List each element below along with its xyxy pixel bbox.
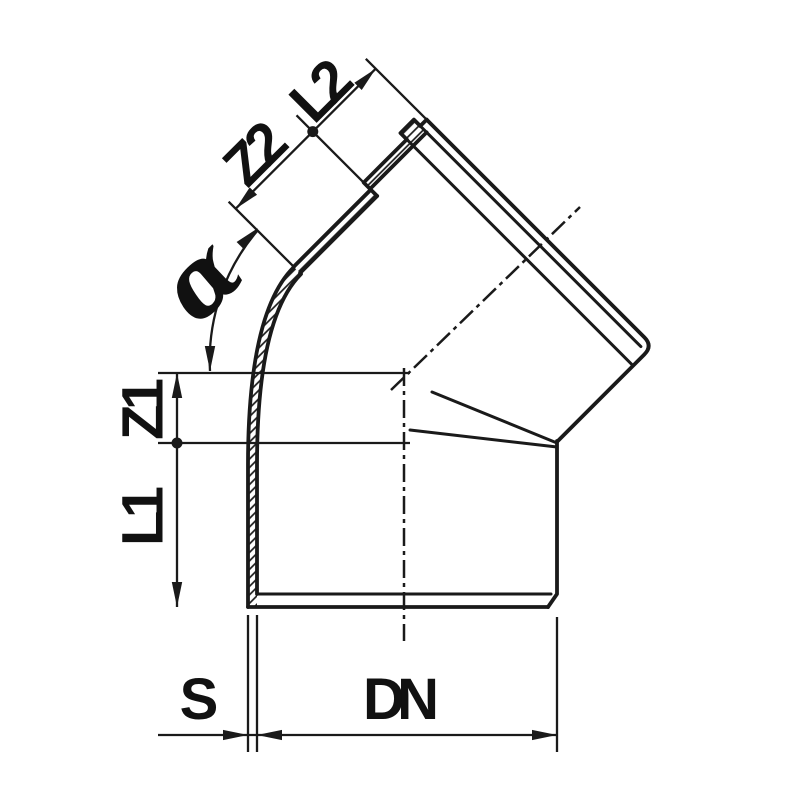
- branch-outer-wall: [294, 190, 371, 267]
- bell-outer-profile-with-seal-bump: [357, 113, 433, 189]
- dim-label-dn: DN: [363, 667, 439, 732]
- dim-label-l1: L1: [111, 486, 176, 546]
- dim-label-z2: Z2: [211, 109, 301, 199]
- dim-label-z1: Z1: [111, 378, 176, 440]
- dim-label-alpha: α: [137, 216, 263, 342]
- socket-branch-group: Z2 L2: [195, 28, 653, 486]
- branch-inner-wall: [300, 196, 377, 273]
- dim-label-s: S: [180, 667, 219, 732]
- pipe-right-wall: [548, 441, 557, 607]
- seal-ring-edge-far: [414, 120, 641, 347]
- arrowhead-dn-left: [257, 730, 282, 740]
- arrowhead-angle-bottom: [205, 346, 215, 371]
- arrowhead-angle-top: [237, 228, 258, 249]
- seal-ring-edge-near: [400, 133, 631, 364]
- arrowhead-dn-right: [532, 730, 557, 740]
- wall-section-hatch-branch: [294, 190, 377, 273]
- arrowhead-s-right: [223, 730, 248, 740]
- dim-label-l2: L2: [277, 46, 365, 134]
- centerline-45deg: [391, 207, 580, 390]
- pipe-elbow-technical-drawing: Z2 L2 Z1 L1 α S DN: [0, 0, 800, 800]
- arrowhead-l1-down: [172, 582, 182, 607]
- pipe-elbow-drawing-page: Z2 L2 Z1 L1 α S DN: [0, 0, 800, 800]
